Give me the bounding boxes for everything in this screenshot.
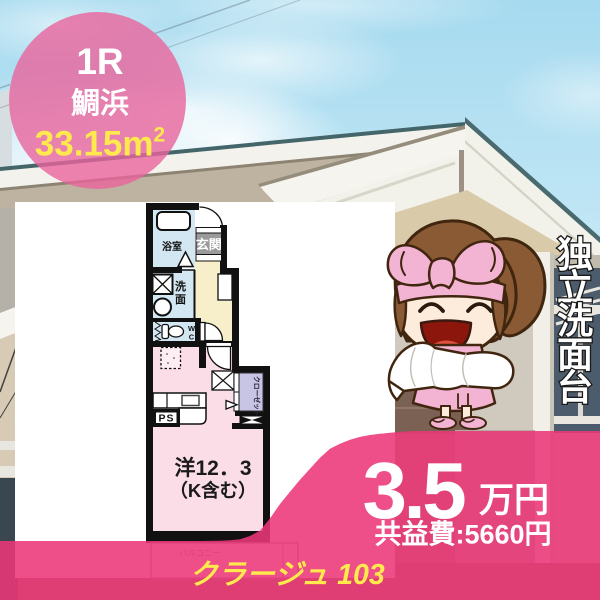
svg-text:クローゼット: クローゼット [253,376,262,417]
svg-text:C: C [189,333,195,342]
svg-text:PS: PS [158,413,174,425]
svg-text:玄関: 玄関 [196,237,222,252]
svg-text:洋12．3: 洋12．3 [174,456,251,480]
svg-text:洗: 洗 [175,279,186,293]
svg-text:33.15m2: 33.15m2 [35,124,165,164]
svg-text:1R: 1R [76,41,123,82]
svg-text:共益費:5660円: 共益費:5660円 [374,520,551,550]
svg-text:浴室: 浴室 [162,240,182,253]
svg-text:クラージュ 103: クラージュ 103 [189,559,385,591]
svg-text:台: 台 [557,367,593,408]
svg-text:鯛浜: 鯛浜 [71,87,129,120]
svg-text:面: 面 [175,293,186,306]
svg-text:（K含む）: （K含む） [169,480,256,501]
svg-text:万円: 万円 [479,481,549,520]
